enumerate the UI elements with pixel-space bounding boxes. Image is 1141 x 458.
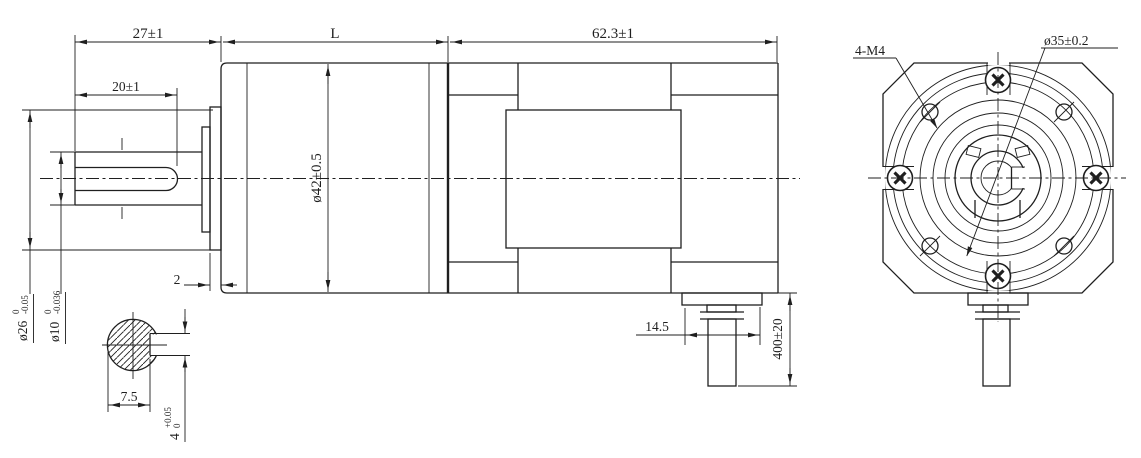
dim-label-motor-length: 62.3±1 <box>592 26 634 42</box>
drawing-canvas: 27±1 L 62.3±1 20±1 <box>0 0 1141 458</box>
stator-band <box>506 110 681 248</box>
dim-label-boss-diameter: ø26 <box>15 321 30 342</box>
side-view: 27±1 L 62.3±1 20±1 <box>11 26 800 442</box>
dim-label-section-slot-tol-lower: 0 <box>172 423 182 428</box>
dim-label-boss-diameter-tol-lower: -0.05 <box>20 295 30 314</box>
dim-label-connector-width: 14.5 <box>645 319 669 334</box>
braided-cable <box>708 319 736 386</box>
dim-motor-length: 62.3±1 <box>450 26 777 62</box>
callout-m4: 4-M4 <box>853 43 937 128</box>
m4-hole-bottom-left <box>920 236 940 256</box>
gearbox-body <box>221 63 448 293</box>
dim-label-section-slot-height: 4 <box>167 433 182 440</box>
dim-label-shaft-diameter: ø10 <box>47 322 62 343</box>
dim-cable-length: 400±20 <box>738 293 797 386</box>
label-bolt-circle: ø35±0.2 <box>1044 33 1089 48</box>
front-view: 4-M4 ø35±0.2 <box>853 33 1126 386</box>
shaft-section-detail: 7.5 4 +0.05 0 <box>102 309 190 442</box>
technical-drawing: 27±1 L 62.3±1 20±1 <box>0 0 1141 458</box>
dim-gearbox-length: L <box>223 26 448 62</box>
dim-label-gearbox-diameter: ø42±0.5 <box>309 153 325 202</box>
dim-label-gearbox-length: L <box>330 26 339 42</box>
motor-body <box>448 63 778 293</box>
dim-flat-length: 20±1 <box>75 79 177 166</box>
dim-boss-diameter: ø26 0 -0.05 <box>11 110 213 343</box>
dim-label-cable-length: 400±20 <box>770 318 785 359</box>
braided-cable-front <box>983 319 1010 386</box>
dim-label-section-flat-width: 7.5 <box>121 389 138 404</box>
dim-connector-width: 14.5 <box>636 307 760 345</box>
dim-label-shaft-diameter-tol-lower: -0.036 <box>52 290 62 314</box>
dim-label-boss-thickness: 2 <box>174 272 181 287</box>
dim-label-shaft-extension: 27±1 <box>133 26 164 42</box>
dim-label-flat-length: 20±1 <box>112 79 140 94</box>
m4-hole-top-right <box>1054 102 1074 122</box>
keyway-flat <box>75 168 178 191</box>
dim-gearbox-diameter: ø42±0.5 <box>309 64 328 292</box>
dim-section-slot-height: 4 +0.05 0 <box>163 309 185 442</box>
label-m4-holes: 4-M4 <box>855 43 885 58</box>
dim-shaft-diameter: ø10 0 -0.036 <box>43 152 66 344</box>
cable-assembly-side <box>682 293 762 386</box>
callout-bolt-circle: ø35±0.2 <box>967 33 1118 256</box>
dim-boss-thickness: 2 <box>174 253 237 291</box>
dim-shaft-extension: 27±1 <box>75 26 221 151</box>
connector-block <box>682 293 762 305</box>
